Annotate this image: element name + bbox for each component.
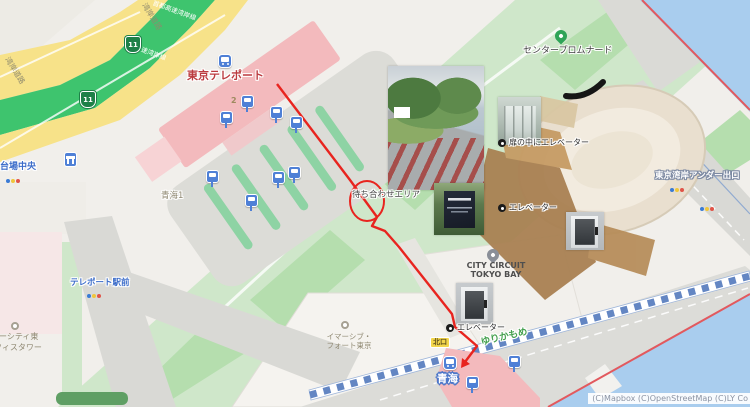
bus-stop-icon: [245, 194, 258, 207]
center-promenade-label: センタープロムナード: [523, 46, 612, 56]
divercity-tower-label-line1: バーシティ東: [0, 332, 38, 341]
north-exit-badge: 北口: [430, 337, 450, 348]
elevator-label-1: エレベーター: [509, 203, 557, 212]
bus-stop-icon: [508, 355, 521, 368]
daiba-chuo-label: 台場中央: [0, 162, 36, 172]
aomi-1-chome-label: 青海1: [161, 192, 183, 202]
photo-elevator-interior-1: [566, 212, 604, 250]
elevator-label-2: エレベーター: [457, 323, 505, 332]
wangan-under-exit-label: 東京湾岸アンダー出口: [655, 172, 740, 182]
footbridge-icon: [64, 152, 77, 167]
dot-marker-icon: [446, 324, 454, 332]
aomi-station-label: 青海: [437, 373, 458, 385]
dot-marker-icon: [498, 204, 506, 212]
map-canvas[interactable]: 湾岸道路 湾岸道路 首都高速湾岸線 首都高速湾岸線 11 11 東京湾岸アンダー…: [0, 0, 750, 407]
bus-stop-icon: [288, 166, 301, 179]
dot-marker-icon: [498, 139, 506, 147]
route-11-shield-icon: 11: [125, 36, 141, 53]
photo-park-path: [388, 66, 484, 190]
meeting-area-label: 待ち合わせエリア: [352, 191, 420, 201]
immersive-fort-line2: フォート東京: [314, 342, 384, 351]
route-11-shield-icon: 11: [80, 91, 96, 108]
photo-arena-sign: [434, 183, 484, 235]
bus-stop-icon: [206, 170, 219, 183]
bus-stop-icon: [220, 111, 233, 124]
bus-stop-icon: [290, 116, 303, 129]
bus-stop-icon: [270, 106, 283, 119]
city-circuit-label: CITY CIRCUIT TOKYO BAY: [448, 261, 544, 279]
teleport-ekimae-label: テレポート駅前: [70, 279, 130, 289]
traffic-light-dots: [670, 188, 684, 192]
bus-stop-icon: [241, 95, 254, 108]
poi-dot-icon: [341, 321, 349, 329]
bus-stop-icon: [466, 376, 479, 389]
tokyo-teleport-station-label: 東京テレポート: [187, 70, 264, 83]
immersive-fort-label: イマーシブ・ フォート東京: [314, 333, 384, 350]
exit-2-label: 2: [231, 96, 237, 105]
city-circuit-line2: TOKYO BAY: [448, 270, 544, 279]
train-icon: [443, 356, 457, 370]
map-attribution[interactable]: (C)Mapbox (C)OpenStreetMap (C)LY Co: [588, 393, 750, 404]
bus-stop-icon: [272, 171, 285, 184]
photo-elevator-interior-2: [456, 283, 493, 324]
poi-dot-icon: [11, 322, 19, 330]
divercity-tower-label-line2: フィスタワー: [0, 343, 42, 352]
city-circuit-line1: CITY CIRCUIT: [448, 261, 544, 270]
traffic-light-dots: [87, 294, 101, 298]
traffic-light-dots: [700, 207, 714, 211]
traffic-light-dots: [6, 179, 20, 183]
elevator-behind-door-label: 扉の中にエレベーター: [509, 138, 589, 147]
train-icon: [218, 54, 232, 68]
